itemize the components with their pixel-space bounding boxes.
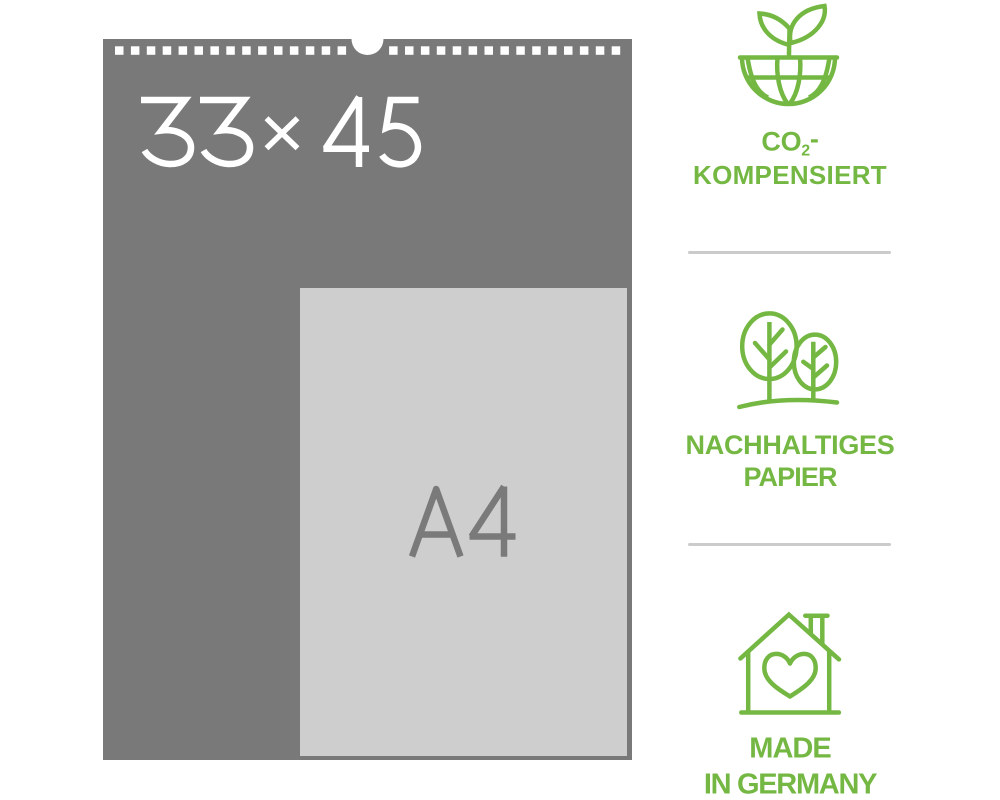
svg-text:IN GERMANY: IN GERMANY (704, 769, 877, 800)
svg-text:KOMPENSIERT: KOMPENSIERT (693, 160, 887, 190)
svg-text:NACHHALTIGES: NACHHALTIGES (686, 430, 895, 460)
svg-text:CO2-: CO2- (761, 124, 818, 160)
svg-text:MADE: MADE (749, 733, 831, 765)
svg-text:PAPIER: PAPIER (743, 462, 837, 492)
